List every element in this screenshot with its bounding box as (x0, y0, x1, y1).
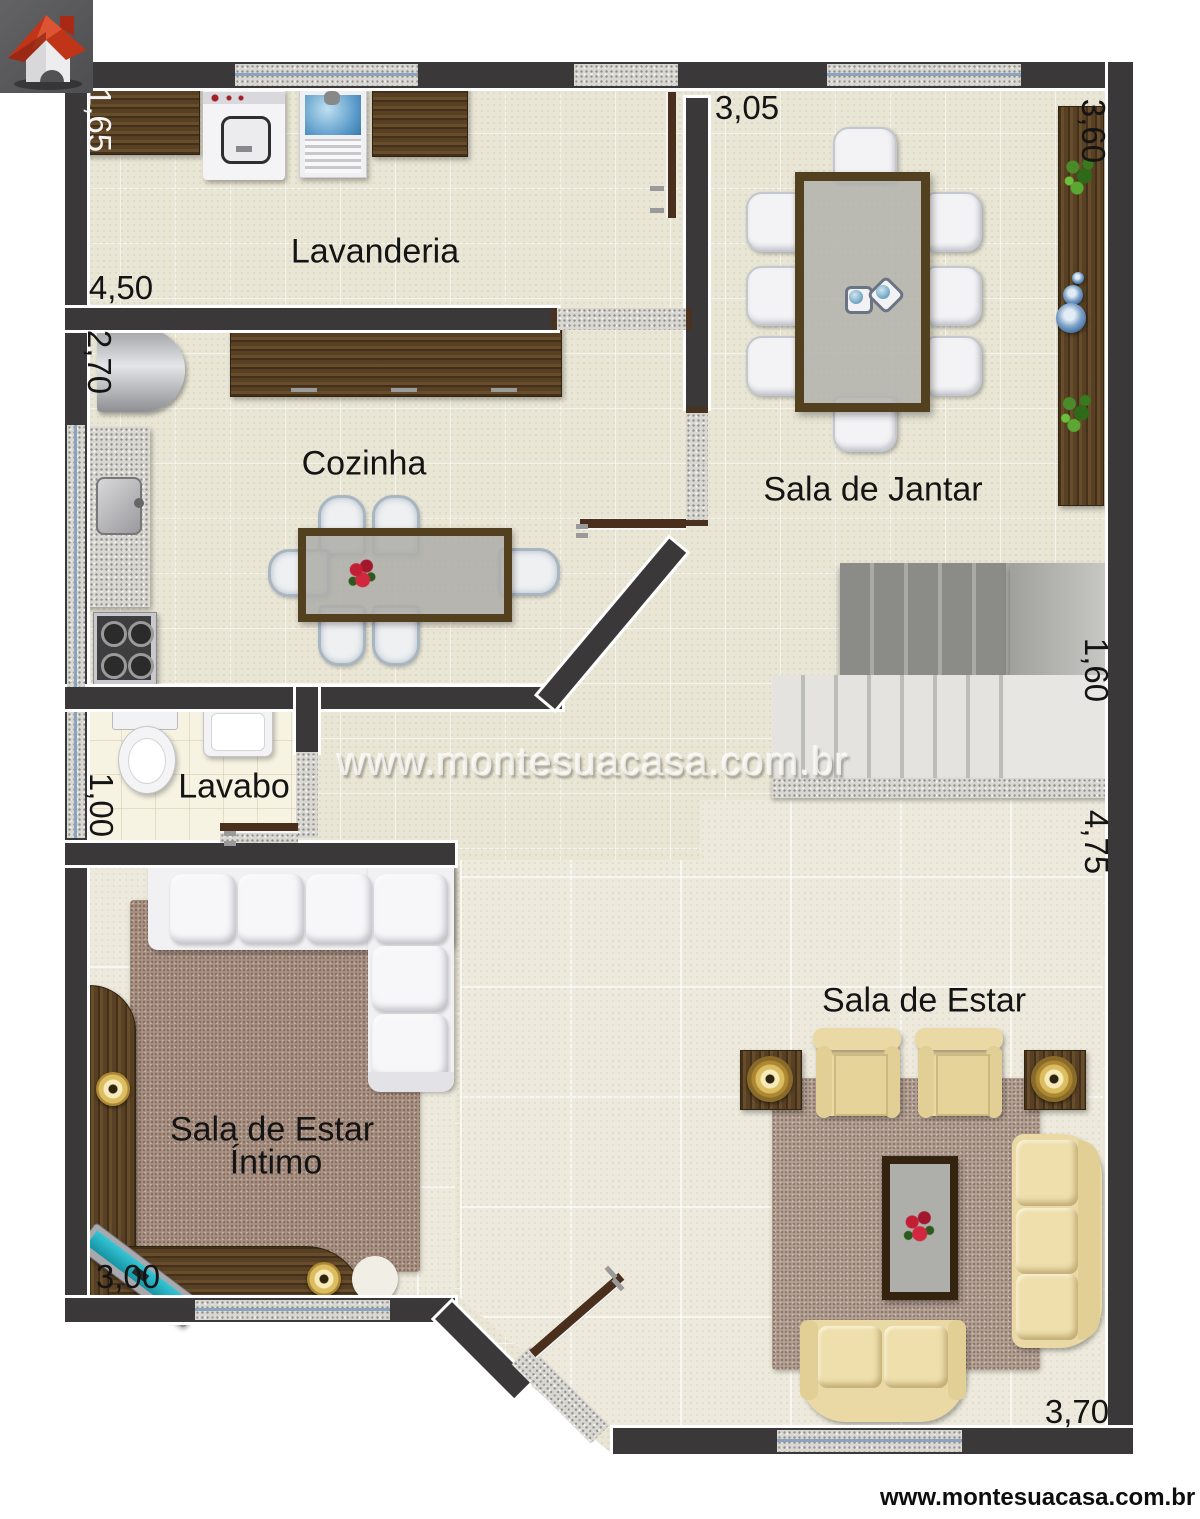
window-glass (827, 73, 1021, 76)
door-handle-icon (650, 208, 664, 213)
threshold-top (574, 64, 678, 86)
sofa-cushion (306, 874, 372, 944)
coffee-table-flowers-icon (900, 1206, 938, 1248)
laundry-cabinet-right (372, 85, 468, 157)
wall-lavabo-right (296, 687, 318, 752)
dining-centerpiece-candle (849, 290, 863, 304)
washing-machine-icon (203, 88, 285, 180)
armchair-seat (936, 1054, 990, 1116)
speaker-icon (1031, 1056, 1077, 1102)
tub-washboard (305, 139, 361, 173)
lavabo-sink-basin (211, 713, 265, 751)
counter-handle (391, 388, 417, 392)
window-glass (74, 425, 77, 687)
door-handle-icon (576, 524, 588, 529)
dim-laundry-side: 1,65 (80, 88, 118, 152)
dining-chair (746, 266, 800, 326)
sofa-cushion (818, 1326, 882, 1388)
burner-icon (128, 621, 154, 647)
room-label-lavanderia: Lavanderia (291, 233, 459, 272)
armchair-arm (918, 1046, 934, 1118)
sofa-cushion (1016, 1140, 1078, 1206)
armchair-arm (816, 1046, 832, 1118)
window-kitchen-left (67, 425, 85, 687)
wall-laundry-kitchen (65, 308, 557, 330)
plant-icon (1058, 388, 1096, 440)
room-label-lavabo: Lavabo (178, 768, 290, 807)
dining-chair (928, 192, 982, 252)
dining-chair (928, 336, 982, 396)
dining-chair (746, 192, 800, 252)
counter-handle (491, 388, 517, 392)
door-handle-icon (576, 533, 588, 538)
sofa-cushion (372, 946, 448, 1012)
burner-icon (101, 653, 127, 679)
sofa-cushion (372, 1014, 448, 1080)
counter-handle (291, 388, 317, 392)
washer-door (221, 116, 271, 164)
window-laundry-top (235, 64, 418, 86)
threshold-laundry-kitchen (557, 308, 686, 330)
sofa-cushion (170, 874, 236, 944)
washer-door-slot (236, 146, 252, 152)
kitchen-table-flowers-icon (346, 556, 378, 592)
room-label-cozinha: Cozinha (302, 445, 427, 484)
sofa-back (1078, 1140, 1100, 1340)
window-intimo-bottom (195, 1300, 390, 1320)
stove-icon (93, 612, 157, 686)
dining-chair (746, 336, 800, 396)
door-jamb (551, 308, 557, 330)
sofa-arm (948, 1320, 966, 1400)
window-glass (235, 73, 418, 76)
dim-laundry-front: 4,50 (89, 269, 153, 307)
toilet-bowl-inner (128, 738, 166, 784)
window-glass (74, 712, 77, 838)
cabinet-end-column (352, 1256, 398, 1302)
sofa-armrest (368, 1072, 454, 1092)
armchair-seat (834, 1054, 888, 1116)
sofa-cushion (1016, 1274, 1078, 1340)
door-jamb (686, 407, 708, 413)
window-glass (195, 1308, 390, 1311)
dining-chair (928, 266, 982, 326)
kitchen-counter-top (230, 323, 562, 397)
dim-intimo-front: 3,00 (96, 1258, 160, 1296)
room-label-sala-de-estar: Sala de Estar (822, 982, 1026, 1021)
laundry-sliding-door (666, 92, 676, 218)
passage-dining (686, 413, 708, 520)
window-dining-top (827, 64, 1021, 86)
wall-dining-left (686, 98, 708, 408)
dim-living-side: 4,75 (1077, 810, 1115, 874)
decor-dish-icon (1056, 303, 1086, 333)
door-handle-icon (650, 186, 664, 191)
dim-kitchen-side: 2,70 (80, 330, 118, 394)
window-living-bottom (777, 1430, 962, 1452)
dim-living-front: 3,70 (1045, 1393, 1109, 1431)
kitchen-door-leaf (580, 519, 686, 530)
dim-lavabo-side: 1,00 (82, 773, 120, 837)
burner-icon (101, 621, 127, 647)
wall-lavabo-right-granite (296, 752, 318, 838)
room-label-sala-de-jantar: Sala de Jantar (763, 471, 982, 510)
stairs-upper-flight (840, 563, 1010, 675)
wall-right (1108, 62, 1133, 1454)
door-handle-icon (224, 831, 236, 836)
dim-dining-front: 3,05 (715, 89, 779, 127)
burner-icon (128, 653, 154, 679)
door-jamb (686, 520, 708, 526)
laundry-tub-icon (299, 88, 367, 178)
watermark-center: www.montesuacasa.com.br (337, 740, 849, 785)
decor-dish-icon (1063, 285, 1083, 305)
door-jamb (686, 308, 692, 330)
dim-dining-side: 3,60 (1074, 99, 1112, 163)
door-handle-icon (224, 841, 236, 846)
tub-faucet-icon (324, 91, 340, 105)
kitchen-table (298, 528, 512, 622)
room-label-sala-intimo-2: Íntimo (230, 1144, 323, 1183)
speaker-icon (747, 1056, 793, 1102)
watermark-bottom: www.montesuacasa.com.br (880, 1484, 1192, 1512)
speaker-icon (96, 1072, 130, 1106)
window-glass (777, 1439, 962, 1442)
sofa-arm (800, 1320, 818, 1400)
dim-stairs-side: 1,60 (1077, 638, 1115, 702)
decor-dish-icon (1072, 272, 1084, 284)
sofa-cushion (884, 1326, 948, 1388)
house-logo-icon (0, 0, 93, 93)
sofa-cushion (374, 874, 448, 944)
dining-centerpiece-candle (876, 285, 890, 299)
washer-control-panel (203, 92, 285, 104)
site-logo (0, 0, 93, 93)
sofa-cushion (238, 874, 304, 944)
kitchen-faucet-icon (134, 498, 144, 508)
speaker-icon (307, 1262, 341, 1296)
wall-intimo-top (65, 843, 455, 865)
floor-plan-canvas: 1,65 4,50 2,70 3,05 3,60 1,60 4,75 1,00 … (0, 0, 1200, 1519)
sofa-cushion (1016, 1208, 1078, 1274)
